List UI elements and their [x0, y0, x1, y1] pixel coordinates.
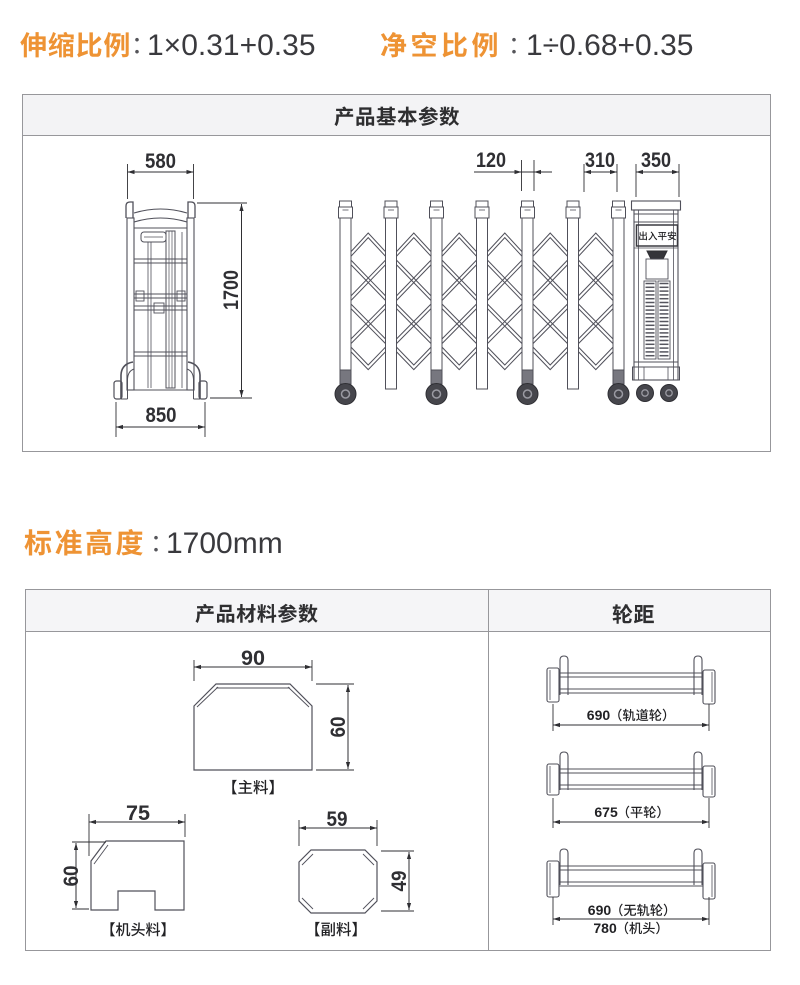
svg-text:310: 310 — [585, 149, 615, 172]
svg-text:580: 580 — [145, 150, 176, 173]
svg-text:1÷0.68+0.35: 1÷0.68+0.35 — [526, 29, 693, 62]
svg-text:1700: 1700 — [220, 270, 243, 310]
svg-text:49: 49 — [388, 871, 411, 892]
svg-text:1700mm: 1700mm — [166, 527, 283, 560]
svg-text:1×0.31+0.35: 1×0.31+0.35 — [147, 29, 316, 62]
svg-text:690: 690 — [587, 707, 611, 723]
svg-text:60: 60 — [60, 866, 83, 887]
svg-text:780: 780 — [593, 920, 617, 936]
svg-text:675: 675 — [594, 804, 618, 820]
svg-text:350: 350 — [641, 149, 671, 172]
svg-text:60: 60 — [327, 717, 350, 738]
svg-text:850: 850 — [146, 404, 177, 427]
svg-text:120: 120 — [476, 149, 506, 172]
svg-text:690: 690 — [588, 902, 612, 918]
